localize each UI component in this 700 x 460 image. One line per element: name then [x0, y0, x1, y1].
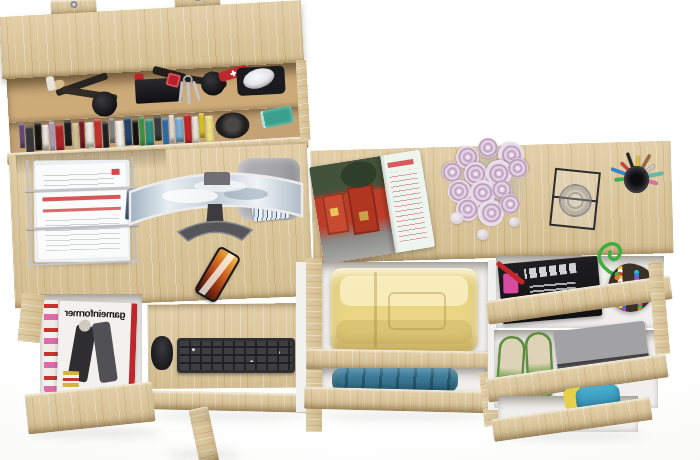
floor-shadow — [495, 432, 645, 440]
book-spine — [55, 124, 65, 152]
building-block — [347, 184, 380, 235]
black-hat — [215, 112, 250, 140]
paper-red-rule — [43, 207, 121, 213]
glass-wire-stand — [549, 168, 601, 230]
floor-shadow — [150, 412, 310, 420]
book-spine — [64, 120, 72, 145]
paper-text-block — [45, 215, 120, 252]
glass-inner-ring — [566, 191, 585, 210]
pen-cup — [616, 148, 656, 198]
game-magazine-cover: gameinformer — [56, 301, 137, 396]
cosmetic-stick — [45, 76, 56, 91]
book-spine — [175, 117, 184, 142]
keyboard — [177, 338, 295, 373]
book-spine — [145, 119, 155, 147]
paper-sheet-top — [35, 163, 128, 260]
wall-shelf — [0, 0, 311, 165]
magazine-caption-block — [63, 371, 80, 388]
magazine-figure — [92, 321, 118, 383]
pen-cup-body — [624, 166, 649, 193]
clothes-pocket — [388, 292, 446, 330]
monitor-mount-tab — [204, 172, 230, 185]
keys-icon — [175, 74, 211, 110]
book-spine — [154, 115, 162, 140]
desk-scene: gameinformer — [0, 0, 700, 460]
building-window — [359, 211, 369, 221]
book-spine — [85, 122, 94, 147]
drinking-glass — [557, 182, 593, 218]
rose — [478, 138, 498, 158]
floor-shadow — [168, 450, 240, 459]
powder-compact — [91, 91, 117, 117]
floor-shadow — [310, 412, 490, 420]
document-tray — [28, 156, 140, 270]
pebble — [509, 217, 520, 227]
magazine-masthead — [524, 263, 577, 279]
keyboard-keys — [180, 341, 292, 370]
computer-mouse — [151, 336, 173, 370]
monitor-stand-base — [178, 221, 252, 241]
pebble — [450, 212, 464, 224]
floor-shadow — [30, 428, 160, 438]
page-headline — [387, 159, 413, 168]
clothes-seam — [374, 272, 377, 348]
pebble — [477, 229, 489, 240]
teal-glassware — [260, 105, 295, 129]
paper-red-rule — [42, 195, 120, 202]
drawer-front-bar — [304, 387, 490, 414]
game-magazine-title: gameinformer — [61, 307, 129, 320]
building-window — [330, 207, 339, 216]
tray-front-bar — [146, 390, 308, 412]
yellow-clothes-stack — [330, 268, 478, 352]
open-magazine — [309, 150, 435, 264]
